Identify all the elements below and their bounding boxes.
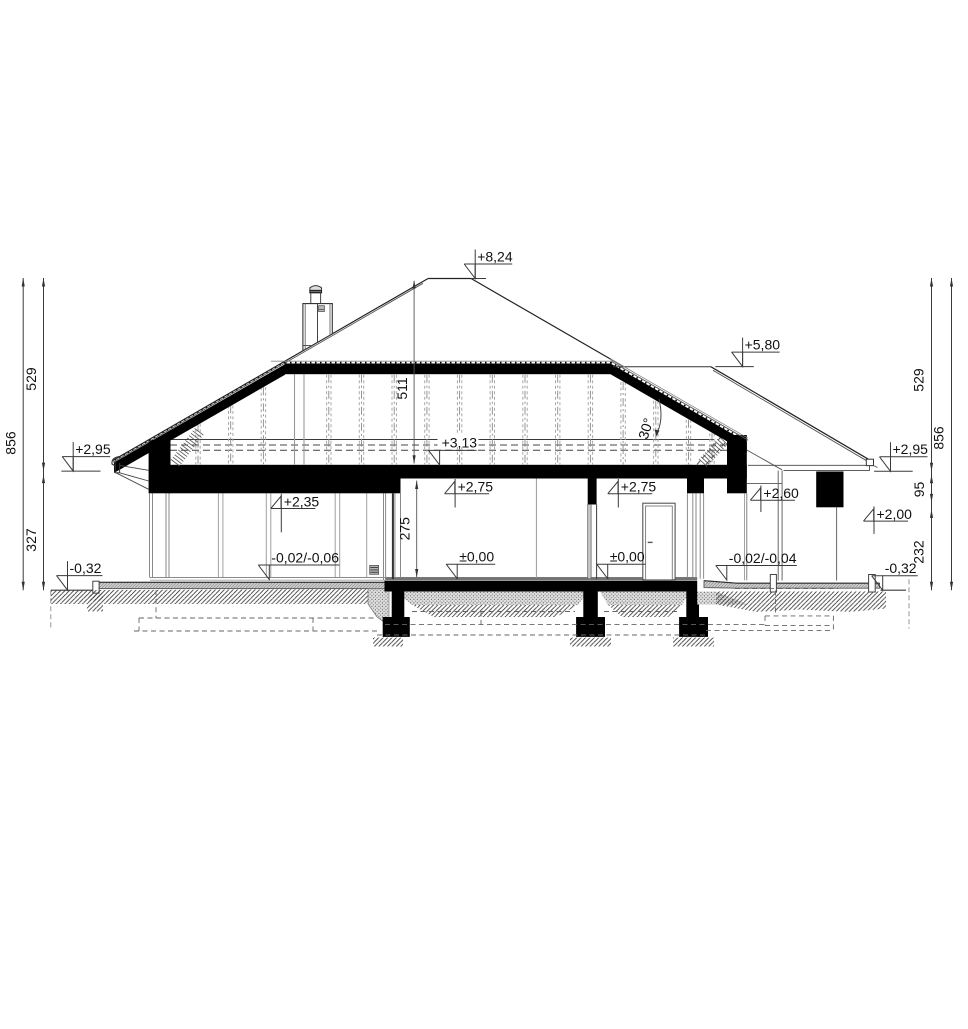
svg-text:275: 275 [396, 517, 412, 541]
svg-text:95: 95 [911, 482, 927, 498]
svg-text:±0,00: ±0,00 [610, 549, 645, 565]
svg-text:+2,95: +2,95 [893, 441, 929, 457]
svg-text:+2,35: +2,35 [284, 494, 320, 510]
svg-text:856: 856 [931, 426, 947, 450]
svg-text:+2,75: +2,75 [621, 479, 657, 495]
svg-text:-0,32: -0,32 [885, 560, 917, 576]
svg-text:+2,60: +2,60 [763, 485, 799, 501]
svg-text:+2,75: +2,75 [458, 479, 494, 495]
svg-text:856: 856 [3, 431, 19, 455]
svg-text:+8,24: +8,24 [477, 248, 513, 264]
svg-text:-0,02/-0,06: -0,02/-0,06 [271, 549, 339, 565]
svg-text:327: 327 [23, 528, 39, 552]
svg-text:+3,13: +3,13 [442, 435, 478, 451]
svg-text:-0,02/-0,04: -0,02/-0,04 [729, 550, 797, 566]
svg-text:529: 529 [23, 367, 39, 391]
svg-text:+5,80: +5,80 [745, 336, 781, 352]
svg-text:+2,00: +2,00 [877, 506, 913, 522]
svg-text:±0,00: ±0,00 [459, 549, 494, 565]
svg-text:511: 511 [394, 377, 410, 400]
svg-text:529: 529 [911, 368, 927, 392]
svg-text:+2,95: +2,95 [75, 441, 111, 457]
svg-text:-0,32: -0,32 [70, 560, 102, 576]
